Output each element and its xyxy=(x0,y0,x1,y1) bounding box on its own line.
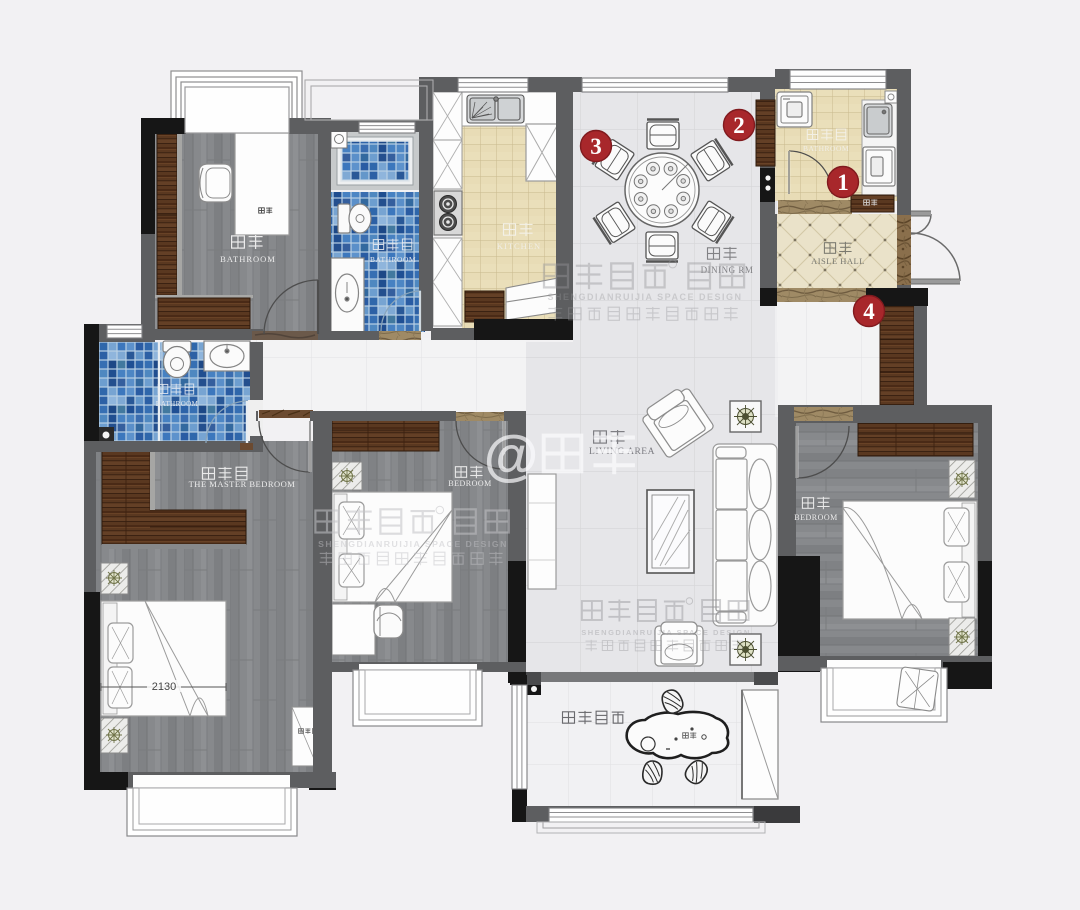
svg-text:BATHROOM: BATHROOM xyxy=(220,254,276,264)
svg-text:AISLE HALL: AISLE HALL xyxy=(811,256,865,266)
svg-text:BATHROOM: BATHROOM xyxy=(803,144,849,153)
svg-text:SHENGDIANRUIJIA SPACE DESIGN: SHENGDIANRUIJIA SPACE DESIGN xyxy=(318,539,508,549)
svg-text:SHENGDIANRUIJIA SPACE DESIGN: SHENGDIANRUIJIA SPACE DESIGN xyxy=(581,628,751,637)
svg-text:3: 3 xyxy=(590,134,602,159)
svg-text:KITCHEN: KITCHEN xyxy=(497,241,541,251)
svg-text:2: 2 xyxy=(733,113,745,138)
svg-text:THE MASTER BEDROOM: THE MASTER BEDROOM xyxy=(189,479,296,489)
svg-text:BEDROOM: BEDROOM xyxy=(794,513,838,522)
svg-text:4: 4 xyxy=(863,299,875,324)
svg-text:1: 1 xyxy=(837,170,849,195)
svg-text:SHENGDIANRUIJIA SPACE DESIGN: SHENGDIANRUIJIA SPACE DESIGN xyxy=(547,292,742,302)
svg-text:DINING RM: DINING RM xyxy=(701,265,754,275)
svg-text:BATHROOM: BATHROOM xyxy=(370,255,416,264)
svg-text:@: @ xyxy=(484,423,539,486)
svg-text:BATHROOM: BATHROOM xyxy=(156,400,199,408)
svg-text:2130: 2130 xyxy=(152,681,176,693)
